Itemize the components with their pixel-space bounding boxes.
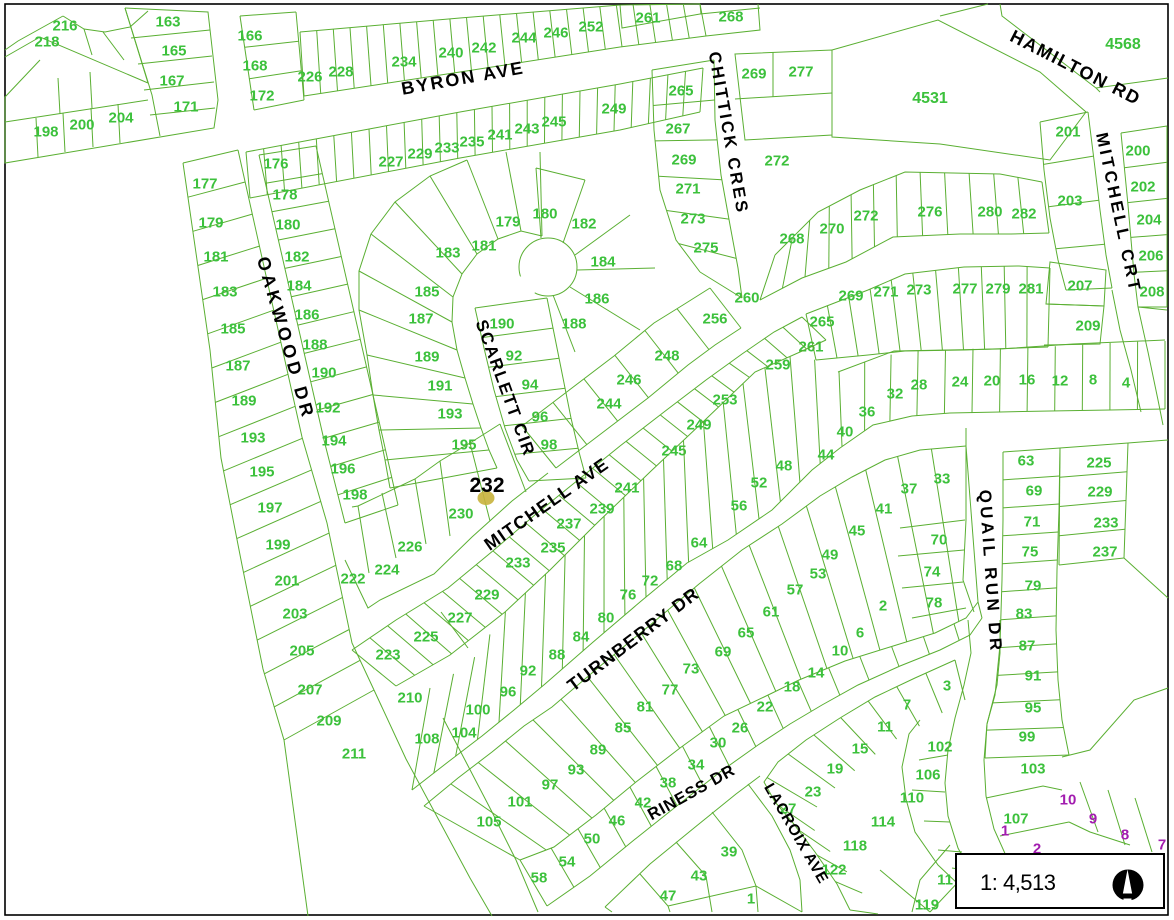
svg-text:200: 200 — [69, 116, 94, 133]
svg-text:249: 249 — [601, 100, 626, 117]
svg-text:186: 186 — [584, 290, 609, 307]
svg-text:95: 95 — [1025, 699, 1042, 716]
svg-text:245: 245 — [661, 442, 686, 459]
svg-text:167: 167 — [159, 72, 184, 89]
svg-text:166: 166 — [237, 27, 262, 44]
svg-text:84: 84 — [573, 628, 590, 645]
svg-text:91: 91 — [1025, 667, 1042, 684]
svg-text:89: 89 — [590, 741, 607, 758]
svg-text:204: 204 — [1136, 211, 1162, 228]
svg-text:1: 1 — [1001, 822, 1009, 839]
svg-text:226: 226 — [297, 68, 322, 85]
svg-text:172: 172 — [249, 87, 274, 104]
svg-text:197: 197 — [257, 499, 282, 516]
svg-text:244: 244 — [596, 395, 622, 412]
svg-text:183: 183 — [212, 283, 237, 300]
svg-text:37: 37 — [901, 480, 918, 497]
svg-text:229: 229 — [1087, 483, 1112, 500]
svg-text:193: 193 — [437, 405, 462, 422]
svg-text:189: 189 — [414, 348, 439, 365]
svg-text:271: 271 — [675, 180, 700, 197]
svg-text:259: 259 — [765, 356, 790, 373]
svg-text:74: 74 — [924, 563, 941, 580]
svg-text:189: 189 — [231, 392, 256, 409]
svg-text:244: 244 — [511, 29, 537, 46]
svg-text:77: 77 — [662, 681, 679, 698]
svg-text:240: 240 — [438, 44, 463, 61]
svg-text:88: 88 — [549, 646, 566, 663]
svg-text:24: 24 — [952, 373, 969, 390]
svg-text:270: 270 — [819, 220, 844, 237]
svg-text:203: 203 — [1057, 192, 1082, 209]
svg-text:75: 75 — [1022, 543, 1039, 560]
svg-text:32: 32 — [887, 385, 904, 402]
svg-text:182: 182 — [284, 248, 309, 265]
svg-text:2: 2 — [879, 597, 887, 614]
svg-text:207: 207 — [1067, 277, 1092, 294]
svg-text:196: 196 — [330, 460, 355, 477]
svg-text:222: 222 — [340, 570, 365, 587]
svg-text:70: 70 — [931, 531, 948, 548]
svg-text:276: 276 — [917, 203, 942, 220]
svg-text:190: 190 — [311, 364, 336, 381]
svg-text:76: 76 — [620, 586, 637, 603]
svg-text:114: 114 — [871, 813, 896, 830]
svg-text:6: 6 — [856, 624, 864, 641]
svg-text:104: 104 — [451, 724, 477, 741]
svg-text:45: 45 — [849, 522, 866, 539]
svg-text:192: 192 — [315, 399, 340, 416]
svg-text:268: 268 — [779, 230, 804, 247]
svg-text:211: 211 — [342, 745, 366, 762]
svg-text:184: 184 — [590, 253, 616, 270]
svg-text:198: 198 — [342, 486, 367, 503]
svg-text:179: 179 — [495, 213, 520, 230]
svg-text:273: 273 — [906, 281, 931, 298]
svg-text:269: 269 — [741, 65, 766, 82]
svg-text:181: 181 — [203, 248, 228, 265]
svg-text:57: 57 — [787, 581, 804, 598]
svg-text:193: 193 — [240, 429, 265, 446]
svg-text:275: 275 — [693, 239, 718, 256]
svg-text:252: 252 — [578, 18, 603, 35]
svg-text:93: 93 — [568, 761, 585, 778]
svg-text:87: 87 — [1019, 637, 1036, 654]
svg-text:198: 198 — [33, 123, 58, 140]
svg-text:243: 243 — [514, 120, 539, 137]
svg-text:269: 269 — [671, 151, 696, 168]
svg-text:261: 261 — [635, 9, 660, 26]
svg-text:69: 69 — [715, 643, 732, 660]
svg-text:71: 71 — [1024, 513, 1041, 530]
svg-text:229: 229 — [407, 145, 432, 162]
svg-text:11: 11 — [877, 718, 893, 735]
svg-text:72: 72 — [642, 572, 659, 589]
svg-text:8: 8 — [1121, 826, 1129, 843]
svg-text:265: 265 — [668, 82, 693, 99]
svg-text:260: 260 — [734, 289, 759, 306]
svg-text:9: 9 — [1089, 810, 1097, 827]
svg-text:241: 241 — [614, 479, 639, 496]
svg-text:269: 269 — [838, 287, 863, 304]
svg-text:187: 187 — [225, 357, 250, 374]
svg-text:18: 18 — [784, 678, 801, 695]
svg-text:241: 241 — [487, 126, 512, 143]
svg-text:94: 94 — [522, 376, 539, 393]
svg-text:61: 61 — [763, 603, 780, 620]
svg-text:176: 176 — [263, 155, 288, 172]
svg-text:225: 225 — [413, 628, 438, 645]
svg-text:246: 246 — [616, 371, 641, 388]
svg-text:105: 105 — [476, 813, 501, 830]
svg-text:185: 185 — [220, 320, 245, 337]
svg-text:246: 246 — [543, 24, 568, 41]
svg-text:279: 279 — [985, 280, 1010, 297]
svg-text:119: 119 — [915, 896, 939, 913]
svg-text:230: 230 — [448, 505, 473, 522]
svg-text:227: 227 — [447, 609, 472, 626]
svg-text:36: 36 — [859, 403, 876, 420]
svg-text:201: 201 — [274, 572, 299, 589]
svg-text:195: 195 — [451, 436, 476, 453]
svg-text:28: 28 — [911, 376, 928, 393]
svg-text:194: 194 — [321, 432, 347, 449]
svg-text:227: 227 — [378, 153, 403, 170]
svg-text:235: 235 — [540, 539, 565, 556]
svg-text:11: 11 — [937, 871, 953, 888]
svg-text:96: 96 — [500, 683, 517, 700]
svg-text:242: 242 — [471, 39, 496, 56]
svg-text:232: 232 — [469, 474, 504, 497]
svg-text:92: 92 — [506, 347, 523, 364]
svg-text:26: 26 — [732, 719, 749, 736]
svg-text:4: 4 — [1122, 374, 1131, 391]
svg-text:200: 200 — [1125, 142, 1150, 159]
svg-text:100: 100 — [465, 701, 490, 718]
svg-text:239: 239 — [589, 500, 614, 517]
svg-text:108: 108 — [414, 730, 439, 747]
svg-text:272: 272 — [764, 152, 789, 169]
svg-text:177: 177 — [192, 175, 217, 192]
svg-text:188: 188 — [561, 315, 586, 332]
svg-text:106: 106 — [915, 766, 940, 783]
svg-text:56: 56 — [731, 497, 748, 514]
svg-text:237: 237 — [1092, 543, 1117, 560]
svg-text:210: 210 — [397, 689, 422, 706]
svg-text:223: 223 — [375, 646, 400, 663]
svg-text:12: 12 — [1052, 372, 1069, 389]
svg-text:30: 30 — [710, 734, 727, 751]
svg-text:110: 110 — [900, 789, 924, 806]
svg-text:83: 83 — [1016, 605, 1033, 622]
svg-text:64: 64 — [691, 534, 708, 551]
svg-text:4531: 4531 — [912, 90, 948, 107]
svg-text:206: 206 — [1138, 247, 1163, 264]
svg-text:218: 218 — [34, 33, 59, 50]
svg-text:15: 15 — [852, 740, 869, 757]
svg-text:63: 63 — [1018, 452, 1035, 469]
svg-text:184: 184 — [286, 277, 312, 294]
svg-text:228: 228 — [328, 63, 353, 80]
svg-text:103: 103 — [1020, 760, 1045, 777]
svg-text:16: 16 — [1019, 371, 1036, 388]
svg-text:38: 38 — [660, 774, 677, 791]
svg-text:179: 179 — [198, 214, 223, 231]
svg-text:277: 277 — [788, 63, 813, 80]
svg-text:118: 118 — [843, 837, 867, 854]
svg-text:99: 99 — [1019, 728, 1036, 745]
svg-text:168: 168 — [242, 57, 267, 74]
svg-text:185: 185 — [414, 283, 439, 300]
svg-text:92: 92 — [520, 662, 537, 679]
svg-text:41: 41 — [876, 500, 893, 517]
svg-text:201: 201 — [1055, 123, 1080, 140]
svg-text:256: 256 — [702, 310, 727, 327]
svg-text:281: 281 — [1018, 280, 1043, 297]
svg-text:44: 44 — [818, 446, 835, 463]
svg-text:33: 33 — [934, 470, 951, 487]
svg-text:79: 79 — [1025, 577, 1042, 594]
svg-text:271: 271 — [873, 283, 898, 300]
svg-text:180: 180 — [532, 205, 557, 222]
svg-text:68: 68 — [666, 557, 683, 574]
svg-text:8: 8 — [1089, 371, 1097, 388]
svg-text:202: 202 — [1130, 178, 1155, 195]
svg-text:272: 272 — [853, 207, 878, 224]
svg-text:46: 46 — [609, 812, 626, 829]
svg-text:85: 85 — [615, 719, 632, 736]
svg-text:245: 245 — [541, 113, 566, 130]
svg-text:253: 253 — [712, 391, 737, 408]
svg-text:14: 14 — [808, 664, 825, 681]
svg-text:81: 81 — [637, 698, 654, 715]
svg-text:248: 248 — [654, 347, 679, 364]
svg-text:207: 207 — [297, 681, 322, 698]
svg-text:225: 225 — [1086, 454, 1111, 471]
svg-text:216: 216 — [52, 17, 77, 34]
svg-text:195: 195 — [249, 463, 274, 480]
svg-text:58: 58 — [531, 869, 548, 886]
svg-text:171: 171 — [173, 98, 198, 115]
svg-text:205: 205 — [289, 642, 314, 659]
svg-text:268: 268 — [718, 8, 743, 25]
svg-text:180: 180 — [275, 216, 300, 233]
svg-text:1: 1 — [747, 890, 755, 907]
svg-text:20: 20 — [984, 372, 1001, 389]
svg-text:233: 233 — [505, 554, 530, 571]
svg-text:97: 97 — [542, 776, 559, 793]
svg-text:229: 229 — [474, 586, 499, 603]
svg-text:73: 73 — [683, 660, 700, 677]
svg-text:80: 80 — [598, 609, 615, 626]
svg-text:226: 226 — [397, 538, 422, 555]
svg-text:50: 50 — [584, 830, 601, 847]
svg-text:280: 280 — [977, 203, 1002, 220]
svg-text:233: 233 — [1093, 514, 1118, 531]
svg-text:4568: 4568 — [1105, 36, 1141, 53]
svg-text:186: 186 — [294, 306, 319, 323]
svg-text:49: 49 — [822, 546, 839, 563]
svg-text:23: 23 — [805, 783, 822, 800]
svg-text:233: 233 — [434, 139, 459, 156]
svg-text:7: 7 — [903, 696, 911, 713]
svg-text:52: 52 — [751, 474, 768, 491]
svg-text:187: 187 — [408, 310, 433, 327]
svg-text:282: 282 — [1011, 205, 1036, 222]
svg-text:48: 48 — [776, 457, 793, 474]
svg-text:3: 3 — [943, 677, 951, 694]
svg-text:53: 53 — [810, 565, 827, 582]
svg-text:178: 178 — [272, 186, 297, 203]
svg-text:249: 249 — [686, 416, 711, 433]
svg-text:165: 165 — [161, 42, 186, 59]
svg-text:163: 163 — [155, 13, 180, 30]
svg-text:98: 98 — [541, 436, 558, 453]
svg-text:191: 191 — [427, 377, 452, 394]
svg-text:39: 39 — [721, 843, 738, 860]
svg-text:43: 43 — [691, 867, 708, 884]
svg-text:273: 273 — [680, 210, 705, 227]
svg-text:10: 10 — [832, 642, 849, 659]
svg-text:224: 224 — [374, 561, 400, 578]
svg-text:188: 188 — [302, 336, 327, 353]
svg-text:199: 199 — [265, 536, 290, 553]
svg-text:22: 22 — [757, 698, 774, 715]
svg-text:267: 267 — [665, 120, 690, 137]
svg-text:69: 69 — [1026, 482, 1043, 499]
svg-text:10: 10 — [1060, 791, 1077, 808]
svg-text:209: 209 — [316, 712, 341, 729]
svg-text:34: 34 — [688, 756, 705, 773]
svg-text:65: 65 — [738, 624, 755, 641]
svg-text:1: 4,513: 1: 4,513 — [980, 870, 1056, 895]
svg-text:7: 7 — [1158, 836, 1166, 853]
svg-text:237: 237 — [556, 515, 581, 532]
svg-text:78: 78 — [926, 594, 943, 611]
svg-text:101: 101 — [507, 793, 532, 810]
svg-text:47: 47 — [660, 887, 677, 904]
svg-text:209: 209 — [1075, 317, 1100, 334]
svg-text:277: 277 — [952, 280, 977, 297]
svg-text:183: 183 — [435, 244, 460, 261]
svg-text:182: 182 — [571, 215, 596, 232]
svg-text:19: 19 — [827, 760, 844, 777]
svg-text:234: 234 — [391, 53, 417, 70]
svg-text:235: 235 — [459, 133, 484, 150]
svg-text:204: 204 — [108, 109, 134, 126]
svg-text:203: 203 — [282, 605, 307, 622]
svg-text:181: 181 — [471, 237, 496, 254]
svg-text:54: 54 — [559, 853, 576, 870]
svg-text:40: 40 — [837, 423, 854, 440]
